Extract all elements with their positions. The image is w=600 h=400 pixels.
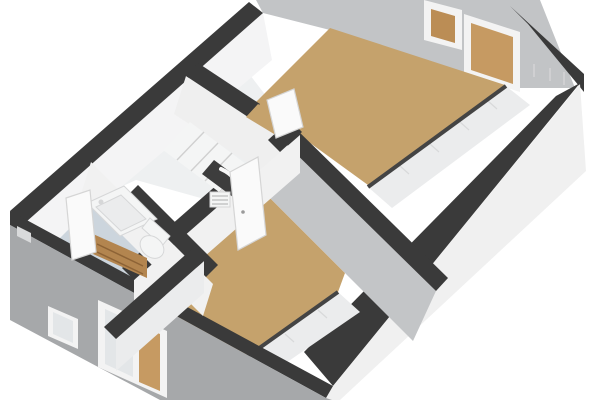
radiator-grille bbox=[210, 192, 230, 207]
bathroom-open-door bbox=[66, 190, 96, 260]
faucet bbox=[99, 200, 104, 205]
floorplan-3d-view[interactable] bbox=[0, 0, 600, 400]
door-handle bbox=[241, 210, 245, 214]
floorplan-stage bbox=[0, 0, 600, 400]
